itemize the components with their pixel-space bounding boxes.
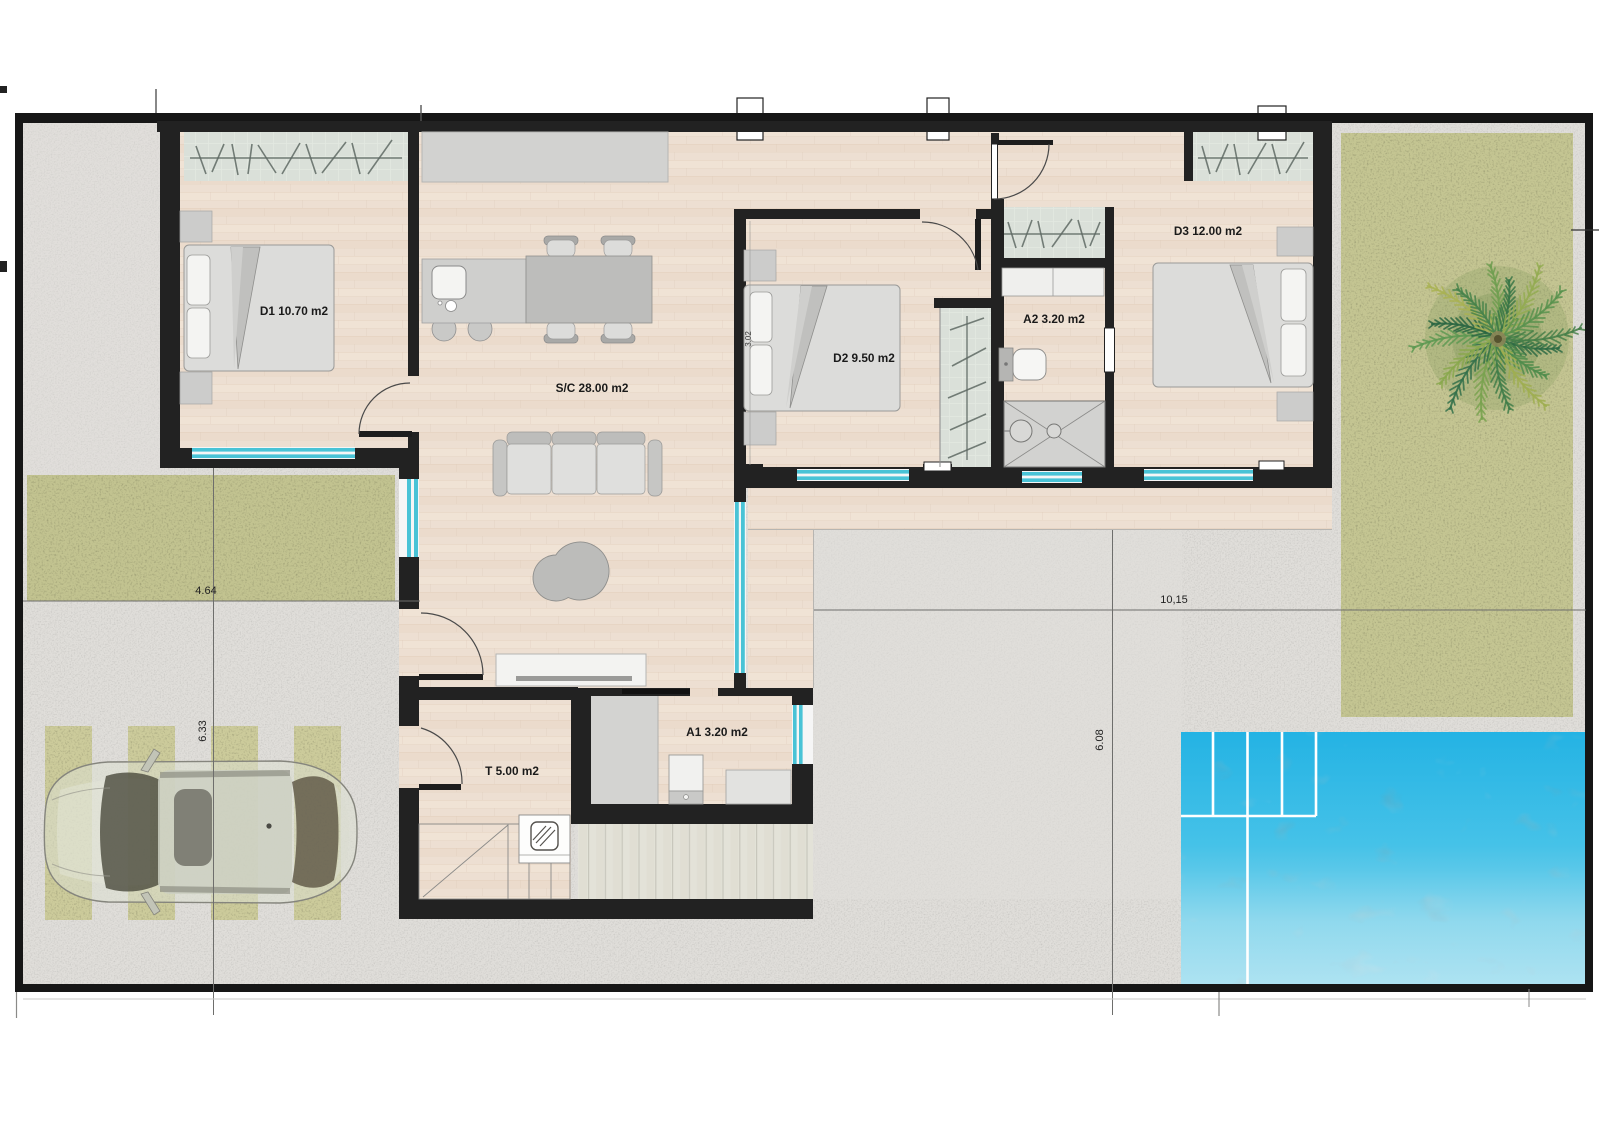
svg-text:6.08: 6.08 — [1094, 729, 1106, 750]
svg-text:S/C 28.00 m2: S/C 28.00 m2 — [556, 381, 629, 395]
svg-text:3.02: 3.02 — [744, 331, 753, 347]
svg-text:A1 3.20 m2: A1 3.20 m2 — [686, 725, 748, 739]
svg-text:T 5.00 m2: T 5.00 m2 — [485, 764, 539, 778]
svg-text:10,15: 10,15 — [1160, 594, 1188, 606]
svg-text:D2 9.50 m2: D2 9.50 m2 — [833, 351, 895, 365]
svg-text:D1 10.70 m2: D1 10.70 m2 — [260, 304, 329, 318]
svg-text:4.64: 4.64 — [195, 585, 216, 597]
svg-text:6.33: 6.33 — [197, 720, 209, 741]
svg-text:A2 3.20 m2: A2 3.20 m2 — [1023, 312, 1085, 326]
svg-text:D3 12.00 m2: D3 12.00 m2 — [1174, 224, 1243, 238]
